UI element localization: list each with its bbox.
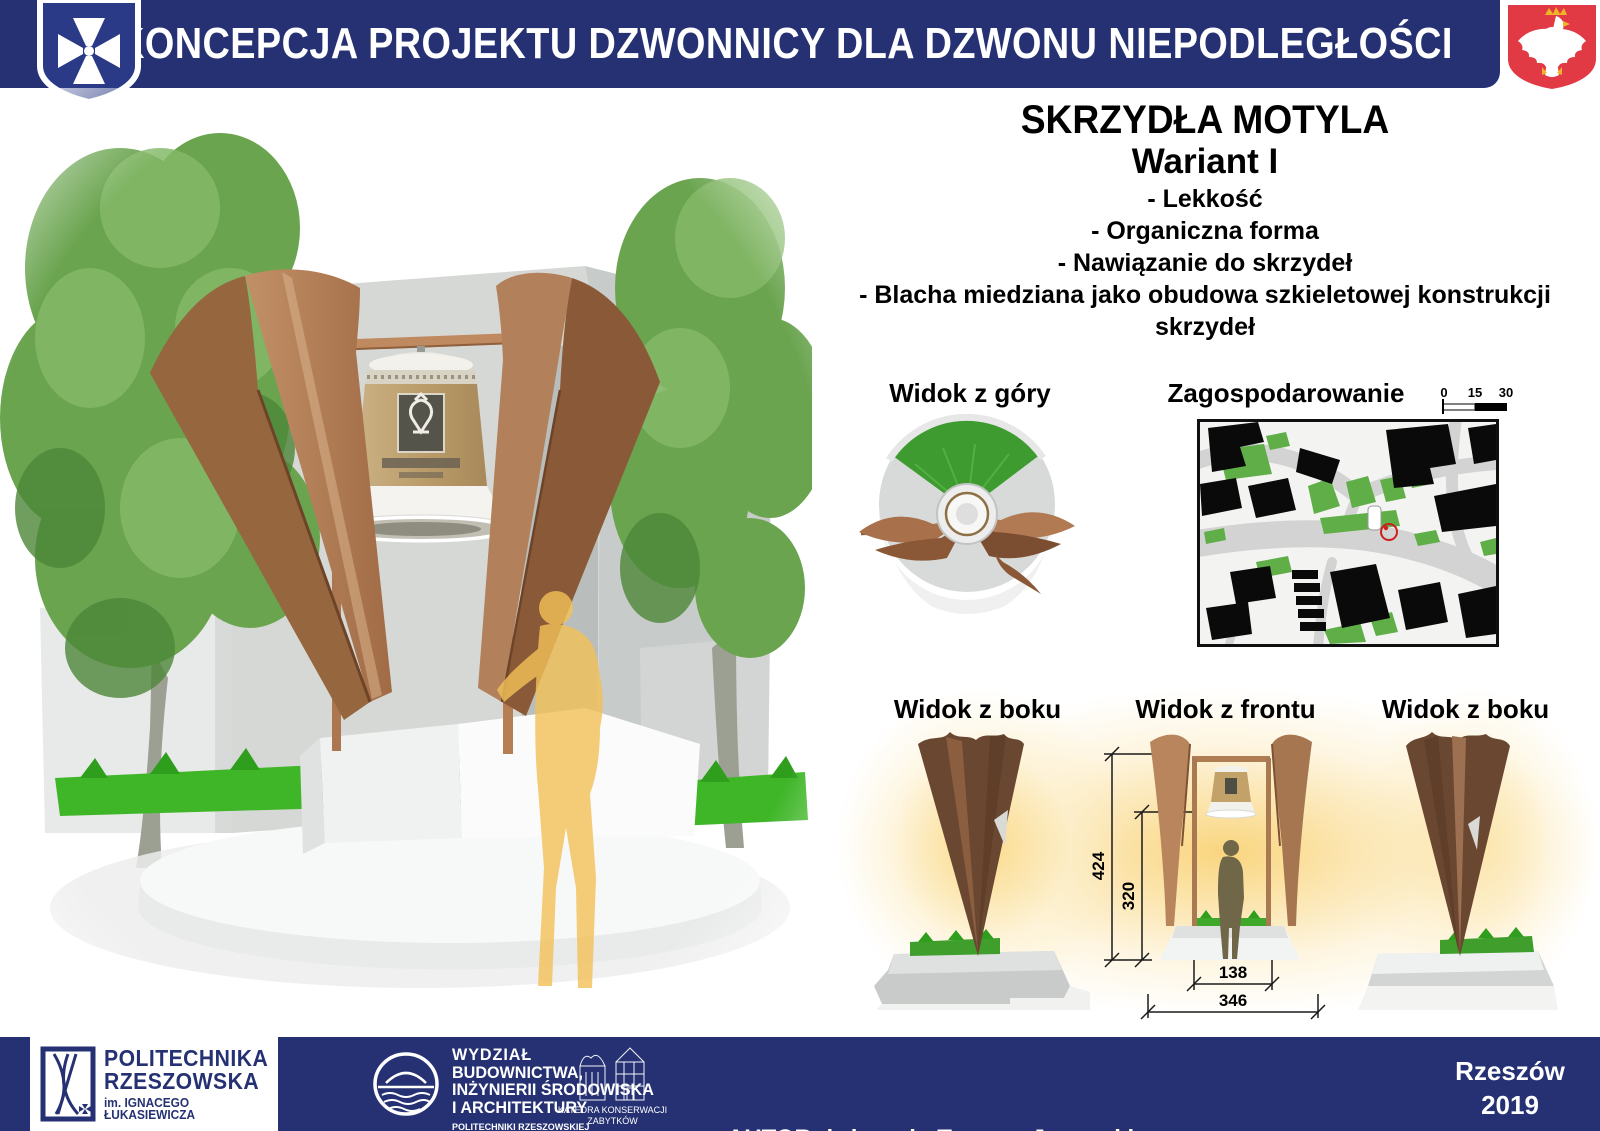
faculty-logo-icon: [372, 1051, 440, 1117]
author-line: AUTOR: inż. arch. Tomasz Jaworski: [727, 1122, 1399, 1131]
front-view-label: Widok z frontu: [1128, 694, 1323, 725]
svg-text:346: 346: [1219, 991, 1247, 1010]
year: 2019: [1430, 1088, 1590, 1122]
svg-text:30: 30: [1499, 385, 1513, 400]
top-view-drawing: [853, 412, 1083, 620]
svg-text:320: 320: [1119, 882, 1138, 910]
poland-eagle-icon: [1504, 3, 1600, 91]
site-plan-label: Zagospodarowanie: [1150, 378, 1422, 409]
svg-text:0: 0: [1440, 385, 1447, 400]
bullet-item: - Nawiązanie do skrzydeł: [855, 247, 1555, 279]
side-view-left-label: Widok z boku: [860, 694, 1095, 725]
side-view-right-label: Widok z boku: [1368, 694, 1563, 725]
svg-text:424: 424: [1089, 851, 1108, 880]
city: Rzeszów: [1430, 1054, 1590, 1088]
prz-logo-icon: [40, 1046, 96, 1122]
city-year: Rzeszów 2019: [1430, 1054, 1590, 1122]
front-view-drawing: 424 320 138 346: [1082, 726, 1378, 1028]
bullet-item: - Organiczna forma: [855, 215, 1555, 247]
university-name-line1: POLITECHNIKA: [104, 1047, 268, 1070]
presentation-board: KONCEPCJA PROJEKTU DZWONNICY DLA DZWONU …: [0, 0, 1600, 1131]
top-view-label: Widok z góry: [855, 378, 1085, 409]
bullet-item: - Blacha miedziana jako obudowa szkielet…: [855, 279, 1555, 343]
bullet-item: - Lekkość: [855, 183, 1555, 215]
department-name: KATEDRA KONSERWACJI ZABYTKÓW: [550, 1105, 675, 1127]
side-view-left-drawing: [858, 724, 1098, 1018]
svg-text:15: 15: [1468, 385, 1482, 400]
site-plan-map: [1197, 419, 1499, 647]
concept-subtitle: Wariant I: [820, 142, 1590, 182]
university-name-line2: RZESZOWSKA: [104, 1070, 268, 1093]
credits: AUTOR: inż. arch. Tomasz Jaworski PROMOT…: [727, 1054, 1399, 1131]
side-view-right-drawing: [1348, 724, 1573, 1018]
concept-title: SKRZYDŁA MOTYLA: [847, 98, 1563, 143]
page-title: KONCEPCJA PROJEKTU DZWONNICY DLA DZWONU …: [239, 0, 1331, 88]
main-render: [0, 88, 812, 1028]
department-logo-icon: [572, 1044, 654, 1104]
scale-bar: 0 15 30: [1437, 384, 1517, 418]
concept-bullets: - Lekkość - Organiczna forma - Nawiązani…: [855, 183, 1555, 343]
university-name-line3: im. IGNACEGO ŁUKASIEWICZA: [104, 1097, 274, 1122]
university-panel: POLITECHNIKA RZESZOWSKA im. IGNACEGO ŁUK…: [30, 1037, 278, 1131]
svg-text:138: 138: [1219, 963, 1247, 982]
